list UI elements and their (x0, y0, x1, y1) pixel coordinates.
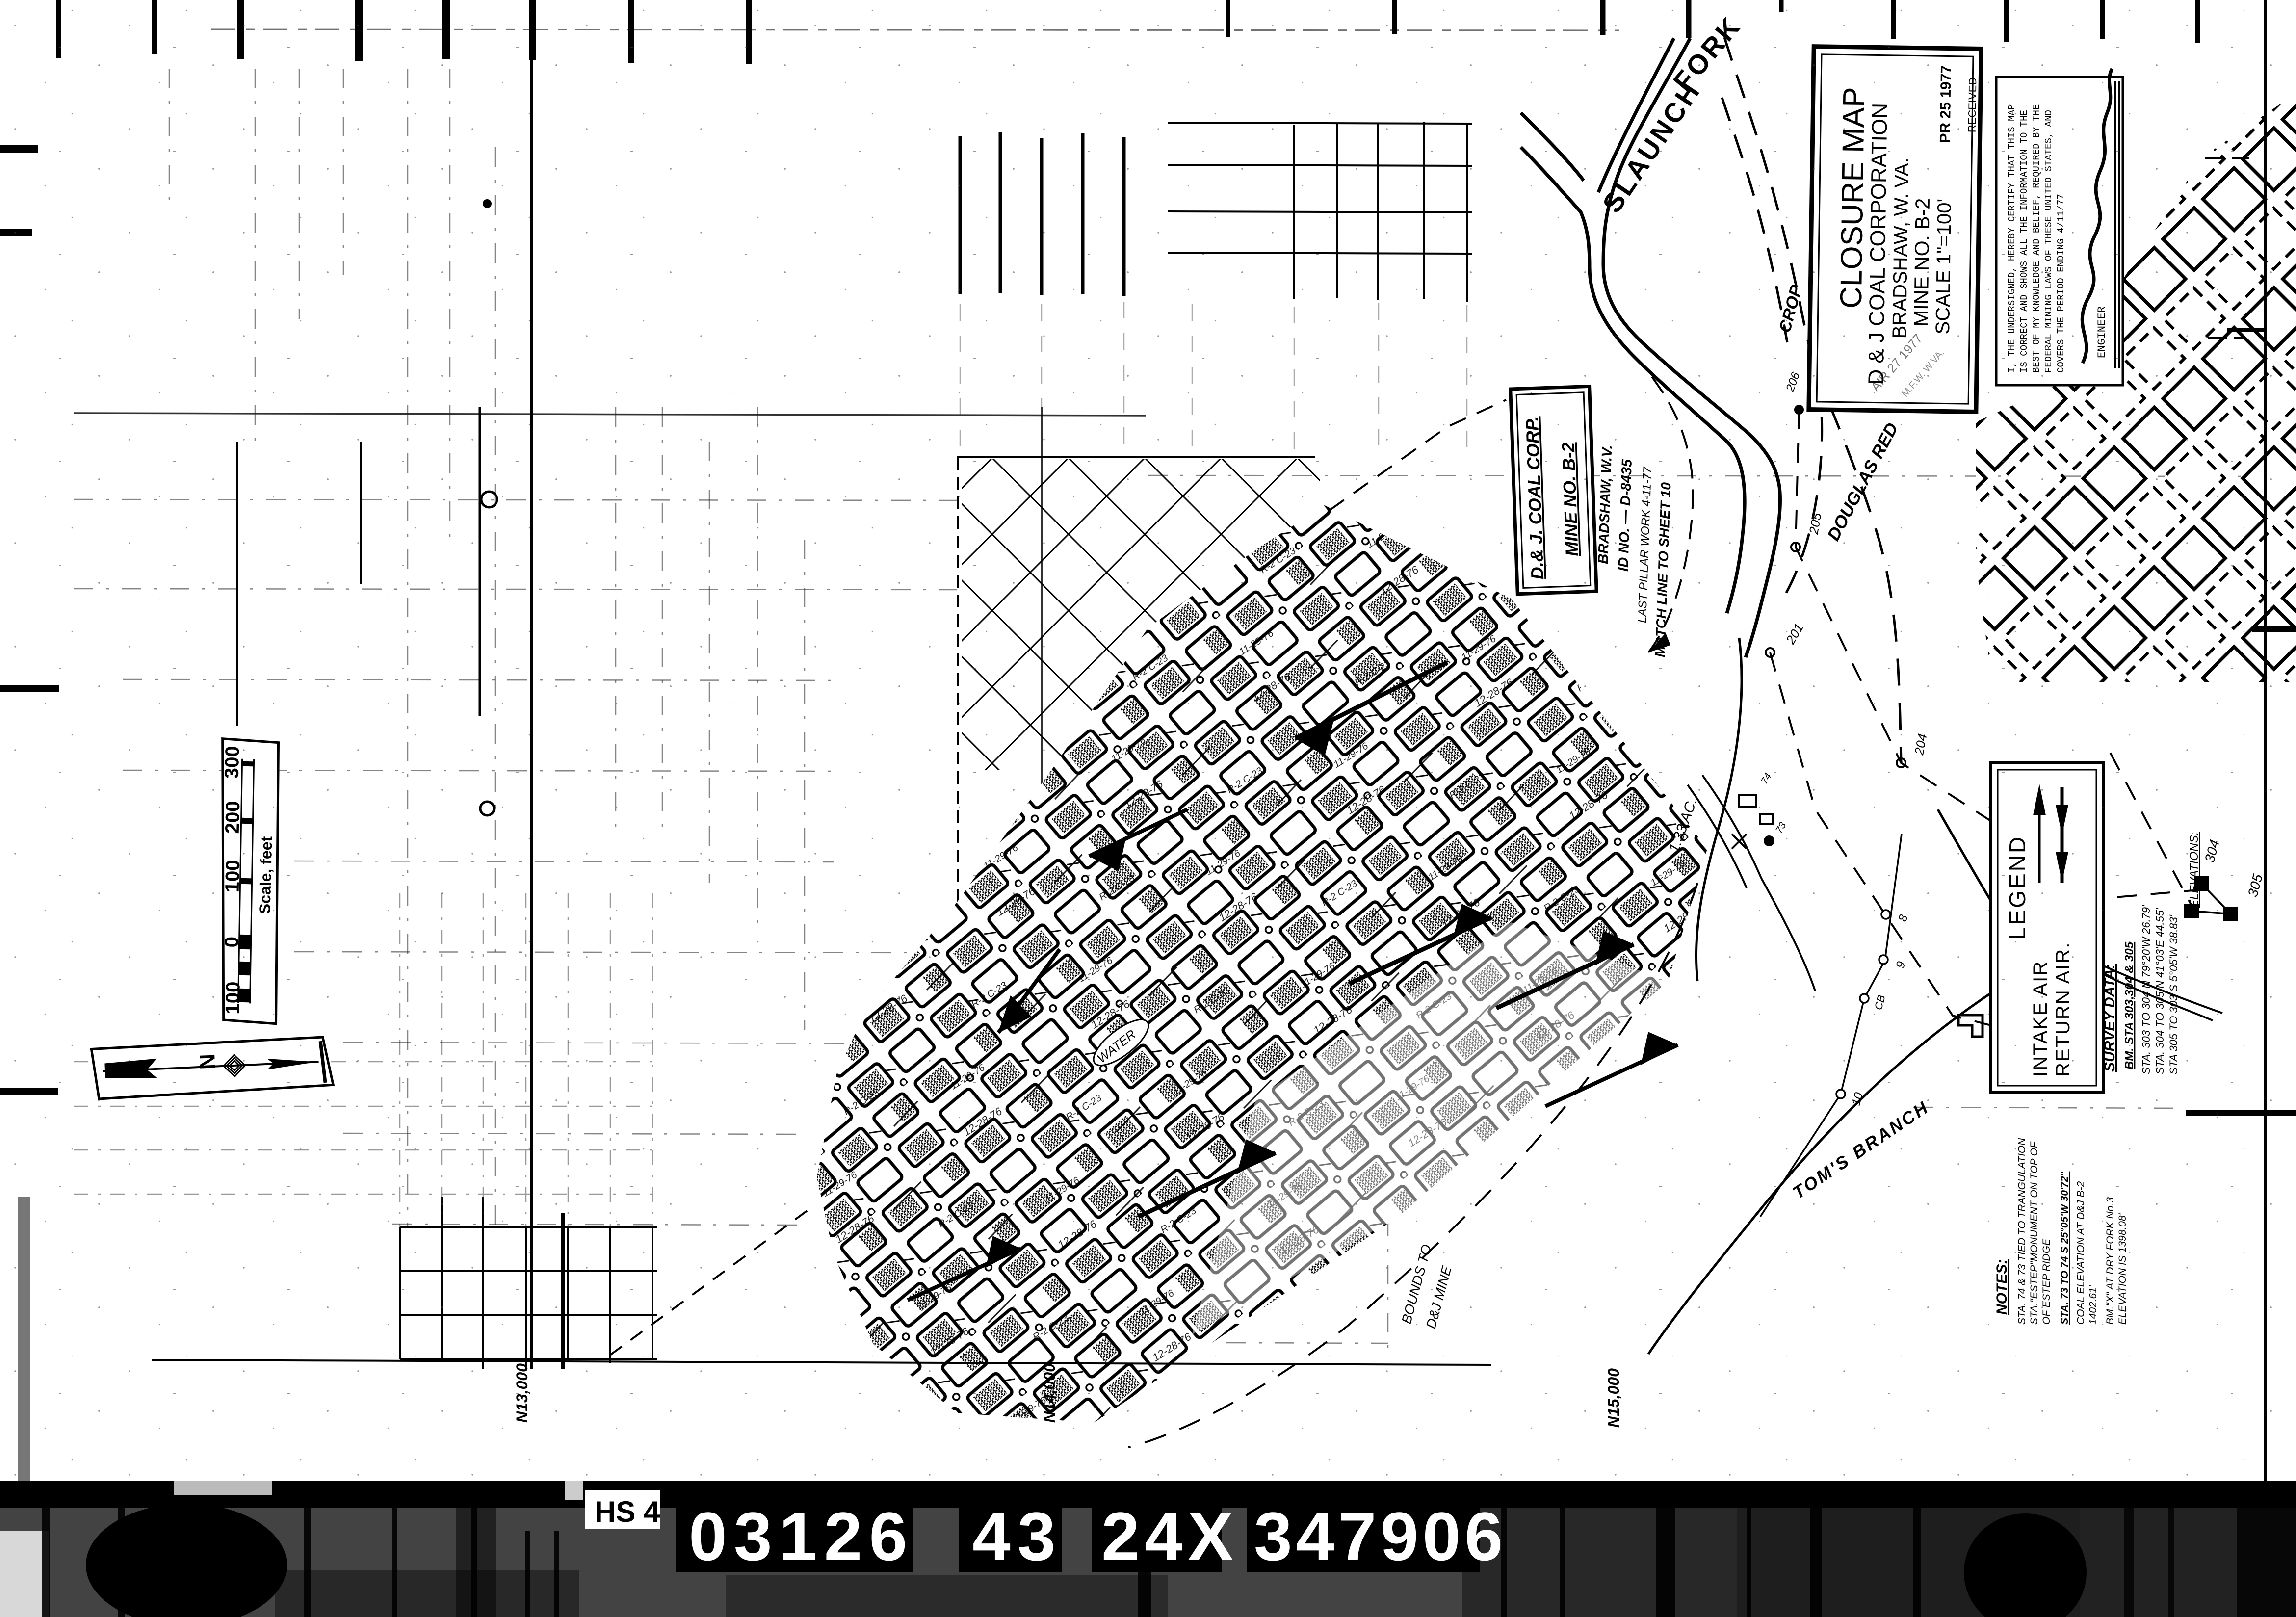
svg-text:24X: 24X (1101, 1498, 1238, 1575)
svg-text:HS 4: HS 4 (595, 1495, 660, 1528)
svg-text:03126: 03126 (689, 1498, 914, 1575)
svg-text:43: 43 (972, 1498, 1063, 1575)
svg-text:347906: 347906 (1254, 1498, 1507, 1575)
